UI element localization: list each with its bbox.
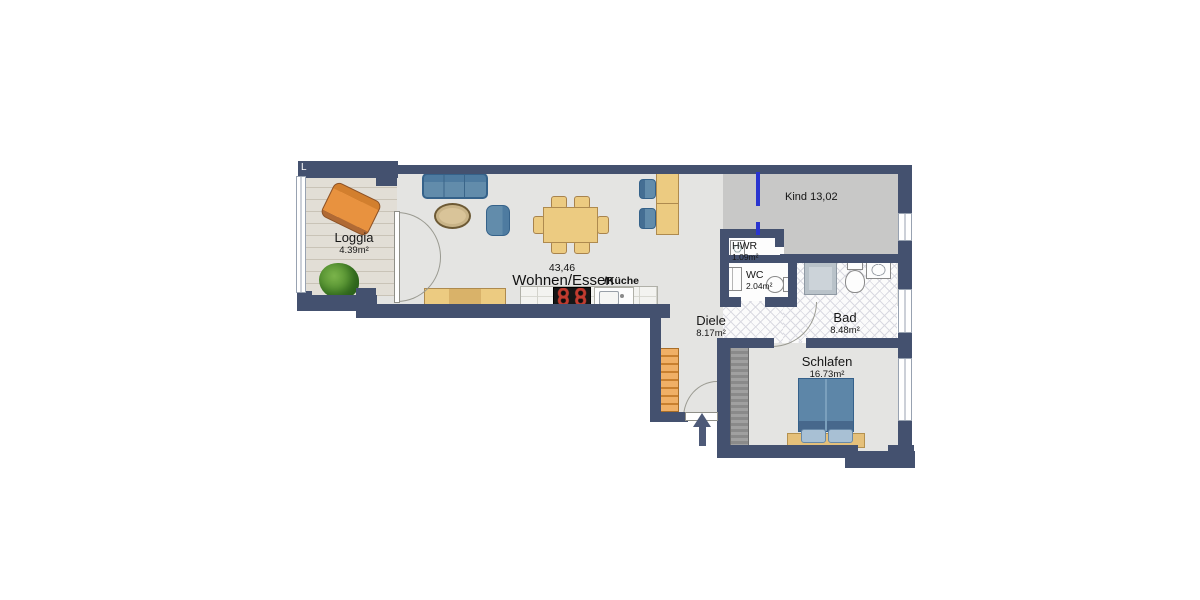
- living-name: Wohnen/Essen: [512, 272, 613, 289]
- hall-shelf: [660, 348, 679, 412]
- wall-top: [396, 165, 912, 174]
- wall-bad-top: [780, 254, 898, 263]
- hwr-label: HWR 1.09m²: [732, 240, 758, 262]
- floorplan: L Loggia 4.39m² 43,46 Wohnen/Essen /Küch…: [0, 0, 1200, 600]
- diele-label: Diele 8.17m²: [696, 313, 726, 340]
- planned-wall-line: [756, 222, 760, 235]
- bad-area: 8.48m²: [830, 325, 860, 336]
- faucet: [620, 294, 624, 298]
- pillow: [828, 429, 853, 443]
- desk-chair: [639, 208, 656, 229]
- loggia-glass-railing: [296, 176, 306, 293]
- corner-mark: L: [301, 163, 307, 173]
- wc-sink: [728, 267, 742, 291]
- wall-corner-bottom-right: [888, 445, 914, 468]
- toilet-bowl: [845, 270, 865, 293]
- wall-wc-bottom-right: [765, 297, 797, 307]
- planned-wall-line: [756, 172, 760, 206]
- toilet-tank: [847, 262, 863, 270]
- dining-table: [543, 207, 598, 243]
- loggia-door-leaf: [394, 211, 400, 303]
- armchair: [486, 205, 510, 236]
- desk: [656, 172, 679, 235]
- schlafen-area: 16.73m²: [802, 369, 853, 380]
- loggia-name: Loggia: [334, 230, 373, 245]
- wall-schlafen-bottom: [717, 445, 858, 458]
- wall-wc-bottom-left: [720, 297, 741, 307]
- entrance-arrow-head: [693, 413, 711, 427]
- hwr-area: 1.09m²: [732, 252, 758, 262]
- wall-schlafen-top-right: [806, 338, 898, 348]
- wall-schlafen-left: [717, 338, 730, 458]
- loggia-area: 4.39m²: [334, 245, 373, 256]
- schlafen-name: Schlafen: [802, 354, 853, 369]
- living-kitchen-suffix: /Küche: [604, 275, 639, 287]
- schlafen-window: [898, 358, 912, 421]
- hwr-name: HWR: [732, 240, 758, 252]
- shower: [804, 262, 837, 295]
- pillow: [801, 429, 826, 443]
- sofa: [422, 173, 488, 199]
- kind-window: [898, 213, 912, 241]
- bad-label: Bad 8.48m²: [830, 310, 860, 337]
- loggia-label: Loggia 4.39m²: [334, 230, 373, 257]
- bad-window: [898, 289, 912, 333]
- wall-living-bottom: [356, 304, 670, 318]
- plant: [319, 263, 359, 299]
- desk-chair: [639, 179, 656, 199]
- wc-name: WC: [746, 269, 772, 281]
- wc-area: 2.04m²: [746, 281, 772, 291]
- wall-hwr-right: [775, 229, 784, 247]
- entrance-arrow-stem: [699, 427, 706, 446]
- wall-diele-left: [650, 316, 661, 420]
- rug: [434, 203, 471, 229]
- bed: [798, 378, 854, 432]
- wc-label: WC 2.04m²: [746, 269, 772, 291]
- schlafen-label: Schlafen 16.73m²: [802, 354, 853, 381]
- sink-basin: [599, 291, 619, 305]
- dining-chair: [597, 216, 609, 234]
- kind-label: Kind 13,02: [785, 191, 838, 203]
- bad-name: Bad: [830, 310, 860, 325]
- wall-entry: [650, 412, 688, 422]
- wall-pillar: [376, 161, 397, 186]
- wardrobe: [730, 347, 749, 448]
- diele-name: Diele: [696, 313, 726, 328]
- diele-area: 8.17m²: [696, 328, 726, 339]
- wall-wc-left: [720, 230, 729, 307]
